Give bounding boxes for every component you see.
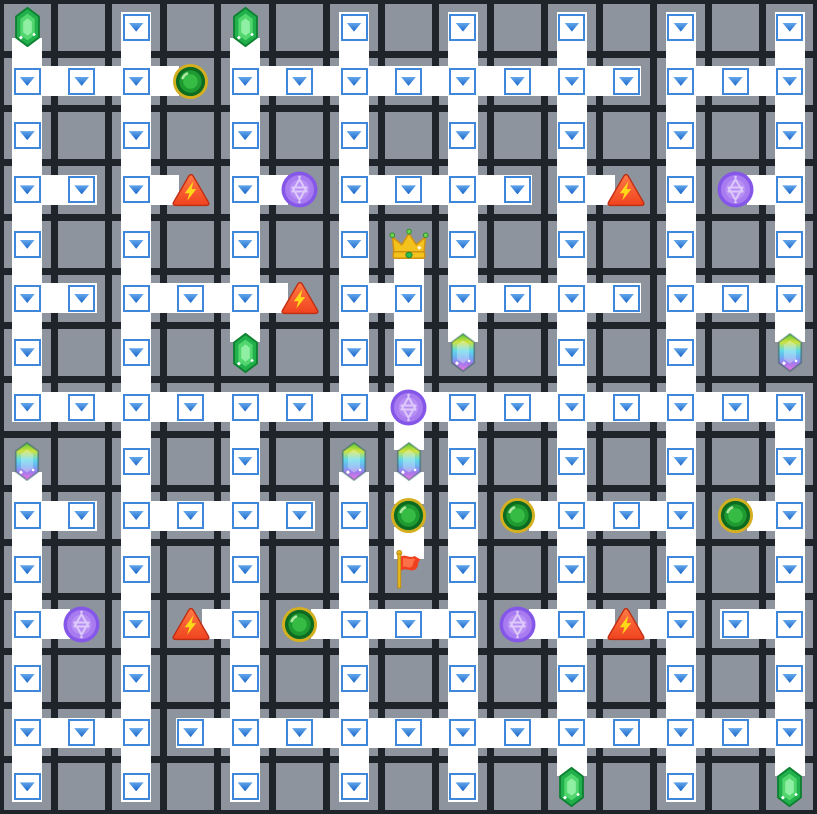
direction-arrow-button[interactable] — [722, 611, 749, 638]
direction-arrow-button[interactable] — [232, 719, 259, 746]
chevron-down-icon — [20, 131, 35, 140]
direction-arrow-button[interactable] — [232, 502, 259, 529]
chevron-down-icon — [129, 674, 144, 683]
direction-arrow-button[interactable] — [123, 394, 150, 421]
direction-arrow-button[interactable] — [341, 231, 368, 258]
chevron-down-icon — [401, 185, 416, 194]
direction-arrow-button[interactable] — [776, 231, 803, 258]
wall-tile — [712, 763, 759, 810]
direction-arrow-button[interactable] — [449, 122, 476, 149]
direction-arrow-button[interactable] — [341, 122, 368, 149]
direction-arrow-button[interactable] — [613, 285, 640, 312]
direction-arrow-button[interactable] — [68, 68, 95, 95]
direction-arrow-button[interactable] — [232, 68, 259, 95]
chevron-down-icon — [455, 294, 470, 303]
chevron-down-icon — [20, 565, 35, 574]
wall-tile — [167, 4, 214, 51]
chevron-down-icon — [347, 185, 362, 194]
direction-arrow-button[interactable] — [123, 176, 150, 203]
direction-arrow-button[interactable] — [667, 231, 694, 258]
direction-arrow-button[interactable] — [14, 719, 41, 746]
wall-tile — [603, 112, 650, 159]
wall-tile — [58, 112, 105, 159]
direction-arrow-button[interactable] — [395, 339, 422, 366]
direction-arrow-button[interactable] — [667, 448, 694, 475]
direction-arrow-button[interactable] — [449, 556, 476, 583]
chevron-down-icon — [564, 403, 579, 412]
chevron-down-icon — [20, 403, 35, 412]
direction-arrow-button[interactable] — [776, 719, 803, 746]
direction-arrow-button[interactable] — [449, 14, 476, 41]
direction-arrow-button[interactable] — [341, 68, 368, 95]
direction-arrow-button[interactable] — [613, 394, 640, 421]
chevron-down-icon — [129, 294, 144, 303]
direction-arrow-button[interactable] — [286, 502, 313, 529]
chevron-down-icon — [347, 620, 362, 629]
chevron-down-icon — [782, 294, 797, 303]
direction-arrow-button[interactable] — [232, 231, 259, 258]
direction-arrow-button[interactable] — [667, 176, 694, 203]
chevron-down-icon — [782, 565, 797, 574]
direction-arrow-button[interactable] — [14, 339, 41, 366]
wall-tile — [58, 329, 105, 376]
direction-arrow-button[interactable] — [14, 394, 41, 421]
chevron-down-icon — [455, 23, 470, 32]
direction-arrow-button[interactable] — [504, 68, 531, 95]
direction-arrow-button[interactable] — [449, 394, 476, 421]
wall-tile — [494, 4, 541, 51]
chevron-down-icon — [238, 240, 253, 249]
direction-arrow-button[interactable] — [14, 231, 41, 258]
direction-arrow-button[interactable] — [232, 556, 259, 583]
direction-arrow-button[interactable] — [286, 394, 313, 421]
direction-arrow-button[interactable] — [449, 176, 476, 203]
chevron-down-icon — [619, 511, 634, 520]
wall-tile — [58, 655, 105, 702]
chevron-down-icon — [455, 77, 470, 86]
chevron-down-icon — [455, 782, 470, 791]
direction-arrow-button[interactable] — [68, 176, 95, 203]
chevron-down-icon — [673, 403, 688, 412]
wall-tile — [603, 546, 650, 593]
chevron-down-icon — [455, 728, 470, 737]
direction-arrow-button[interactable] — [68, 719, 95, 746]
direction-arrow-button[interactable] — [667, 665, 694, 692]
direction-arrow-button[interactable] — [123, 773, 150, 800]
direction-arrow-button[interactable] — [123, 665, 150, 692]
chevron-down-icon — [129, 728, 144, 737]
direction-arrow-button[interactable] — [232, 665, 259, 692]
direction-arrow-button[interactable] — [558, 231, 585, 258]
direction-arrow-button[interactable] — [667, 394, 694, 421]
direction-arrow-button[interactable] — [123, 339, 150, 366]
direction-arrow-button[interactable] — [232, 394, 259, 421]
direction-arrow-button[interactable] — [449, 502, 476, 529]
chevron-down-icon — [455, 240, 470, 249]
direction-arrow-button[interactable] — [341, 556, 368, 583]
direction-arrow-button[interactable] — [558, 68, 585, 95]
direction-arrow-button[interactable] — [558, 394, 585, 421]
chevron-down-icon — [564, 77, 579, 86]
chevron-down-icon — [183, 294, 198, 303]
direction-arrow-button[interactable] — [177, 285, 204, 312]
direction-arrow-button[interactable] — [722, 394, 749, 421]
direction-arrow-button[interactable] — [776, 394, 803, 421]
direction-arrow-button[interactable] — [14, 68, 41, 95]
direction-arrow-button[interactable] — [341, 502, 368, 529]
chevron-down-icon — [455, 565, 470, 574]
chevron-down-icon — [183, 511, 198, 520]
direction-arrow-button[interactable] — [558, 14, 585, 41]
chevron-down-icon — [129, 348, 144, 357]
chevron-down-icon — [564, 457, 579, 466]
direction-arrow-button[interactable] — [558, 285, 585, 312]
chevron-down-icon — [129, 511, 144, 520]
direction-arrow-button[interactable] — [722, 719, 749, 746]
chevron-down-icon — [129, 77, 144, 86]
direction-arrow-button[interactable] — [123, 285, 150, 312]
direction-arrow-button[interactable] — [667, 773, 694, 800]
direction-arrow-button[interactable] — [613, 68, 640, 95]
direction-arrow-button[interactable] — [123, 502, 150, 529]
chevron-down-icon — [238, 185, 253, 194]
direction-arrow-button[interactable] — [395, 68, 422, 95]
direction-arrow-button[interactable] — [449, 665, 476, 692]
wall-tile — [494, 112, 541, 159]
wall-tile — [603, 221, 650, 268]
chevron-down-icon — [510, 294, 525, 303]
chevron-down-icon — [74, 511, 89, 520]
chevron-down-icon — [564, 240, 579, 249]
chevron-down-icon — [564, 294, 579, 303]
direction-arrow-button[interactable] — [776, 122, 803, 149]
direction-arrow-button[interactable] — [14, 556, 41, 583]
chevron-down-icon — [619, 77, 634, 86]
wall-tile — [167, 546, 214, 593]
chevron-down-icon — [782, 457, 797, 466]
direction-arrow-button[interactable] — [504, 719, 531, 746]
chevron-down-icon — [673, 294, 688, 303]
direction-arrow-button[interactable] — [286, 68, 313, 95]
direction-arrow-button[interactable] — [776, 502, 803, 529]
chevron-down-icon — [619, 294, 634, 303]
chevron-down-icon — [347, 674, 362, 683]
direction-arrow-button[interactable] — [776, 556, 803, 583]
direction-arrow-button[interactable] — [341, 611, 368, 638]
direction-arrow-button[interactable] — [776, 68, 803, 95]
direction-arrow-button[interactable] — [395, 611, 422, 638]
chevron-down-icon — [510, 185, 525, 194]
wall-tile — [276, 763, 323, 810]
direction-arrow-button[interactable] — [449, 231, 476, 258]
chevron-down-icon — [564, 620, 579, 629]
direction-arrow-button[interactable] — [14, 611, 41, 638]
chevron-down-icon — [728, 620, 743, 629]
chevron-down-icon — [292, 728, 307, 737]
wall-tile — [603, 438, 650, 485]
direction-arrow-button[interactable] — [123, 448, 150, 475]
chevron-down-icon — [129, 565, 144, 574]
direction-arrow-button[interactable] — [667, 339, 694, 366]
wall-tile — [603, 329, 650, 376]
path-corridor — [394, 418, 424, 450]
chevron-down-icon — [238, 620, 253, 629]
direction-arrow-button[interactable] — [341, 665, 368, 692]
direction-arrow-button[interactable] — [14, 285, 41, 312]
chevron-down-icon — [292, 403, 307, 412]
wall-tile — [603, 4, 650, 51]
wall-tile — [58, 438, 105, 485]
chevron-down-icon — [564, 511, 579, 520]
direction-arrow-button[interactable] — [123, 556, 150, 583]
wall-tile — [712, 438, 759, 485]
direction-arrow-button[interactable] — [341, 394, 368, 421]
direction-arrow-button[interactable] — [667, 285, 694, 312]
chevron-down-icon — [74, 77, 89, 86]
wall-tile — [494, 438, 541, 485]
wall-tile — [712, 221, 759, 268]
wall-tile — [167, 763, 214, 810]
direction-arrow-button[interactable] — [286, 719, 313, 746]
chevron-down-icon — [782, 131, 797, 140]
wall-tile — [276, 112, 323, 159]
direction-arrow-button[interactable] — [68, 502, 95, 529]
wall-tile — [167, 329, 214, 376]
direction-arrow-button[interactable] — [558, 176, 585, 203]
chevron-down-icon — [619, 728, 634, 737]
wall-tile — [385, 4, 432, 51]
path-corridor — [394, 527, 424, 559]
direction-arrow-button[interactable] — [613, 502, 640, 529]
wall-tile — [494, 763, 541, 810]
chevron-down-icon — [292, 511, 307, 520]
chevron-down-icon — [183, 403, 198, 412]
wall-tile — [276, 4, 323, 51]
direction-arrow-button[interactable] — [667, 611, 694, 638]
direction-arrow-button[interactable] — [613, 719, 640, 746]
direction-arrow-button[interactable] — [177, 394, 204, 421]
wall-tile — [494, 546, 541, 593]
direction-arrow-button[interactable] — [667, 122, 694, 149]
chevron-down-icon — [782, 511, 797, 520]
direction-arrow-button[interactable] — [722, 68, 749, 95]
direction-arrow-button[interactable] — [123, 231, 150, 258]
chevron-down-icon — [347, 348, 362, 357]
wall-tile — [385, 112, 432, 159]
chevron-down-icon — [74, 185, 89, 194]
chevron-down-icon — [401, 348, 416, 357]
direction-arrow-button[interactable] — [449, 448, 476, 475]
chevron-down-icon — [782, 620, 797, 629]
chevron-down-icon — [20, 348, 35, 357]
direction-arrow-button[interactable] — [123, 719, 150, 746]
direction-arrow-button[interactable] — [14, 122, 41, 149]
direction-arrow-button[interactable] — [232, 773, 259, 800]
chevron-down-icon — [401, 77, 416, 86]
chevron-down-icon — [401, 620, 416, 629]
chevron-down-icon — [129, 403, 144, 412]
direction-arrow-button[interactable] — [667, 556, 694, 583]
chevron-down-icon — [782, 403, 797, 412]
direction-arrow-button[interactable] — [68, 285, 95, 312]
direction-arrow-button[interactable] — [667, 719, 694, 746]
chevron-down-icon — [619, 403, 634, 412]
chevron-down-icon — [347, 403, 362, 412]
chevron-down-icon — [673, 728, 688, 737]
chevron-down-icon — [673, 348, 688, 357]
chevron-down-icon — [238, 565, 253, 574]
direction-arrow-button[interactable] — [177, 719, 204, 746]
direction-arrow-button[interactable] — [776, 665, 803, 692]
chevron-down-icon — [129, 457, 144, 466]
chevron-down-icon — [673, 457, 688, 466]
chevron-down-icon — [510, 403, 525, 412]
path-corridor — [394, 472, 424, 504]
chevron-down-icon — [673, 674, 688, 683]
direction-arrow-button[interactable] — [776, 448, 803, 475]
wall-tile — [494, 329, 541, 376]
direction-arrow-button[interactable] — [395, 285, 422, 312]
chevron-down-icon — [292, 77, 307, 86]
direction-arrow-button[interactable] — [504, 285, 531, 312]
chevron-down-icon — [510, 728, 525, 737]
direction-arrow-button[interactable] — [232, 448, 259, 475]
direction-arrow-button[interactable] — [667, 68, 694, 95]
direction-arrow-button[interactable] — [341, 719, 368, 746]
direction-arrow-button[interactable] — [504, 394, 531, 421]
chevron-down-icon — [564, 728, 579, 737]
chevron-down-icon — [74, 294, 89, 303]
direction-arrow-button[interactable] — [123, 122, 150, 149]
direction-arrow-button[interactable] — [449, 611, 476, 638]
chevron-down-icon — [238, 294, 253, 303]
direction-arrow-button[interactable] — [232, 122, 259, 149]
wall-tile — [276, 221, 323, 268]
direction-arrow-button[interactable] — [667, 502, 694, 529]
chevron-down-icon — [782, 185, 797, 194]
chevron-down-icon — [238, 131, 253, 140]
direction-arrow-button[interactable] — [449, 68, 476, 95]
direction-arrow-button[interactable] — [14, 176, 41, 203]
direction-arrow-button[interactable] — [14, 773, 41, 800]
chevron-down-icon — [455, 457, 470, 466]
chevron-down-icon — [20, 728, 35, 737]
chevron-down-icon — [20, 674, 35, 683]
chevron-down-icon — [455, 620, 470, 629]
chevron-down-icon — [673, 23, 688, 32]
chevron-down-icon — [238, 457, 253, 466]
wall-tile — [58, 221, 105, 268]
wall-tile — [167, 112, 214, 159]
direction-arrow-button[interactable] — [341, 773, 368, 800]
direction-arrow-button[interactable] — [558, 665, 585, 692]
direction-arrow-button[interactable] — [776, 176, 803, 203]
chevron-down-icon — [401, 294, 416, 303]
wall-tile — [603, 763, 650, 810]
chevron-down-icon — [673, 185, 688, 194]
chevron-down-icon — [673, 77, 688, 86]
direction-arrow-button[interactable] — [558, 719, 585, 746]
direction-arrow-button[interactable] — [395, 176, 422, 203]
chevron-down-icon — [129, 782, 144, 791]
chevron-down-icon — [564, 565, 579, 574]
chevron-down-icon — [728, 403, 743, 412]
chevron-down-icon — [564, 131, 579, 140]
chevron-down-icon — [347, 23, 362, 32]
direction-arrow-button[interactable] — [177, 502, 204, 529]
direction-arrow-button[interactable] — [123, 14, 150, 41]
chevron-down-icon — [564, 185, 579, 194]
direction-arrow-button[interactable] — [14, 665, 41, 692]
direction-arrow-button[interactable] — [667, 14, 694, 41]
direction-arrow-button[interactable] — [232, 611, 259, 638]
chevron-down-icon — [347, 294, 362, 303]
direction-arrow-button[interactable] — [776, 285, 803, 312]
chevron-down-icon — [401, 728, 416, 737]
chevron-down-icon — [673, 620, 688, 629]
chevron-down-icon — [20, 620, 35, 629]
direction-arrow-button[interactable] — [341, 285, 368, 312]
wall-tile — [276, 329, 323, 376]
direction-arrow-button[interactable] — [123, 68, 150, 95]
direction-arrow-button[interactable] — [449, 719, 476, 746]
direction-arrow-button[interactable] — [449, 285, 476, 312]
chevron-down-icon — [347, 728, 362, 737]
direction-arrow-button[interactable] — [558, 448, 585, 475]
direction-arrow-button[interactable] — [232, 285, 259, 312]
direction-arrow-button[interactable] — [395, 719, 422, 746]
direction-arrow-button[interactable] — [558, 122, 585, 149]
direction-arrow-button[interactable] — [341, 339, 368, 366]
direction-arrow-button[interactable] — [722, 285, 749, 312]
wall-tile — [603, 655, 650, 702]
direction-arrow-button[interactable] — [558, 556, 585, 583]
chevron-down-icon — [347, 240, 362, 249]
direction-arrow-button[interactable] — [776, 14, 803, 41]
chevron-down-icon — [673, 240, 688, 249]
direction-arrow-button[interactable] — [558, 502, 585, 529]
chevron-down-icon — [238, 403, 253, 412]
chevron-down-icon — [129, 185, 144, 194]
direction-arrow-button[interactable] — [14, 502, 41, 529]
direction-arrow-button[interactable] — [232, 176, 259, 203]
chevron-down-icon — [564, 23, 579, 32]
direction-arrow-button[interactable] — [449, 773, 476, 800]
direction-arrow-button[interactable] — [776, 611, 803, 638]
direction-arrow-button[interactable] — [341, 176, 368, 203]
direction-arrow-button[interactable] — [68, 394, 95, 421]
chevron-down-icon — [347, 77, 362, 86]
chevron-down-icon — [455, 674, 470, 683]
direction-arrow-button[interactable] — [558, 611, 585, 638]
chevron-down-icon — [728, 77, 743, 86]
wall-tile — [712, 4, 759, 51]
chevron-down-icon — [455, 131, 470, 140]
chevron-down-icon — [129, 131, 144, 140]
chevron-down-icon — [455, 403, 470, 412]
direction-arrow-button[interactable] — [123, 611, 150, 638]
chevron-down-icon — [347, 565, 362, 574]
chevron-down-icon — [455, 185, 470, 194]
wall-tile — [712, 329, 759, 376]
direction-arrow-button[interactable] — [341, 14, 368, 41]
direction-arrow-button[interactable] — [504, 176, 531, 203]
chevron-down-icon — [74, 403, 89, 412]
chevron-down-icon — [238, 728, 253, 737]
wall-tile — [276, 438, 323, 485]
chevron-down-icon — [673, 131, 688, 140]
direction-arrow-button[interactable] — [558, 339, 585, 366]
